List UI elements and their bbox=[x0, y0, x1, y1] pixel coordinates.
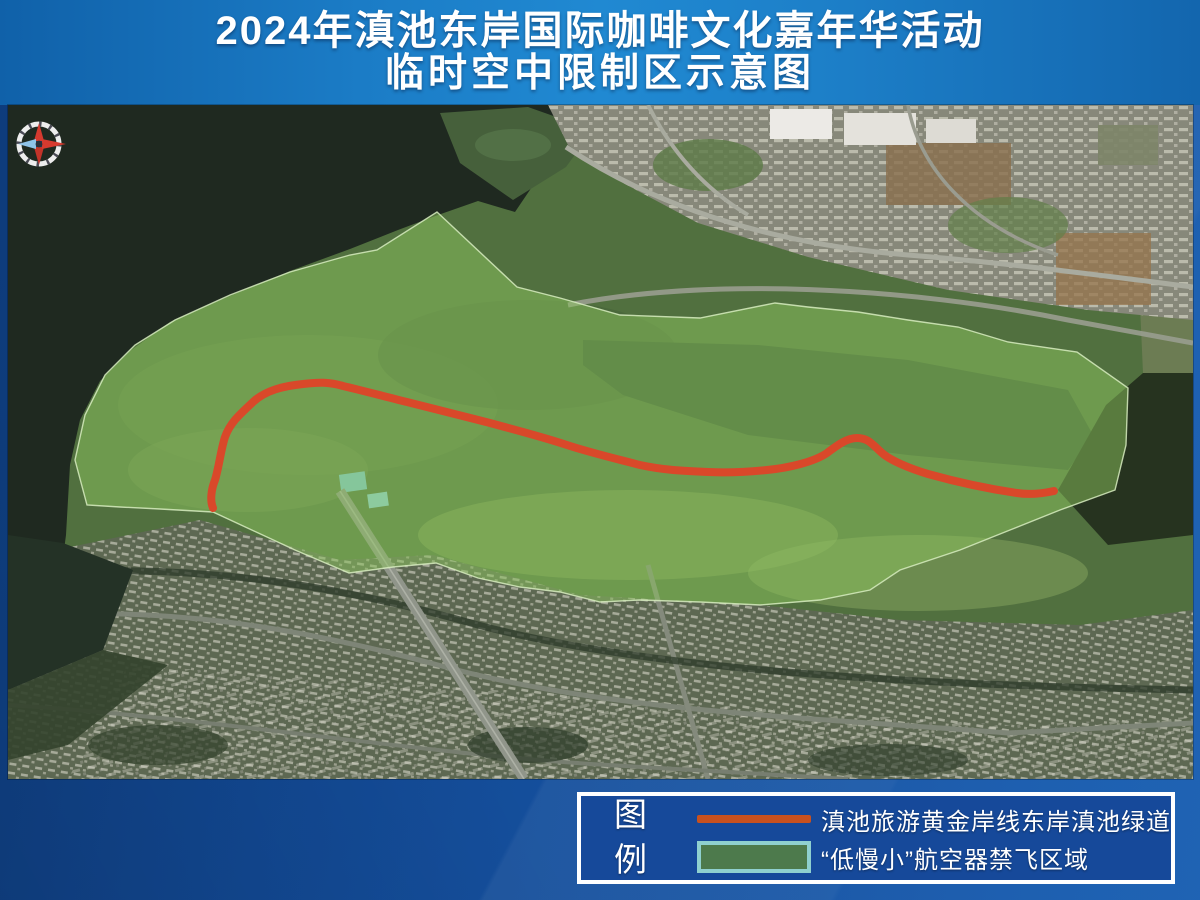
greenway-label: 滇池旅游黄金岸线东岸滇池绿道 bbox=[821, 802, 1171, 837]
greenway-line-swatch bbox=[697, 815, 811, 823]
title-band: 2024年滇池东岸国际咖啡文化嘉年华活动 临时空中限制区示意图 bbox=[0, 0, 1200, 105]
page-title-line1: 2024年滇池东岸国际咖啡文化嘉年华活动 bbox=[216, 9, 985, 54]
no-fly-swatch-cell bbox=[697, 841, 821, 873]
poster-canvas: 2024年滇池东岸国际咖啡文化嘉年华活动 临时空中限制区示意图 bbox=[0, 0, 1200, 900]
greenway-swatch-cell bbox=[697, 815, 821, 823]
page-title-line2: 临时空中限制区示意图 bbox=[385, 53, 815, 96]
greenway-line-swatch-rect bbox=[697, 815, 811, 823]
legend-heading-char2: 例 bbox=[614, 838, 648, 883]
legend-heading: 图 例 bbox=[581, 793, 681, 882]
no-fly-label: “低慢小”航空器禁飞区域 bbox=[821, 840, 1171, 875]
legend-box: 图 例 滇池旅游黄金岸线东岸滇池绿道 “低慢小”航空器禁飞区域 bbox=[577, 792, 1175, 884]
no-fly-area-swatch bbox=[697, 841, 811, 873]
legend-heading-char1: 图 bbox=[614, 793, 648, 838]
satellite-map bbox=[8, 105, 1193, 779]
no-fly-area-swatch-rect bbox=[699, 843, 809, 871]
